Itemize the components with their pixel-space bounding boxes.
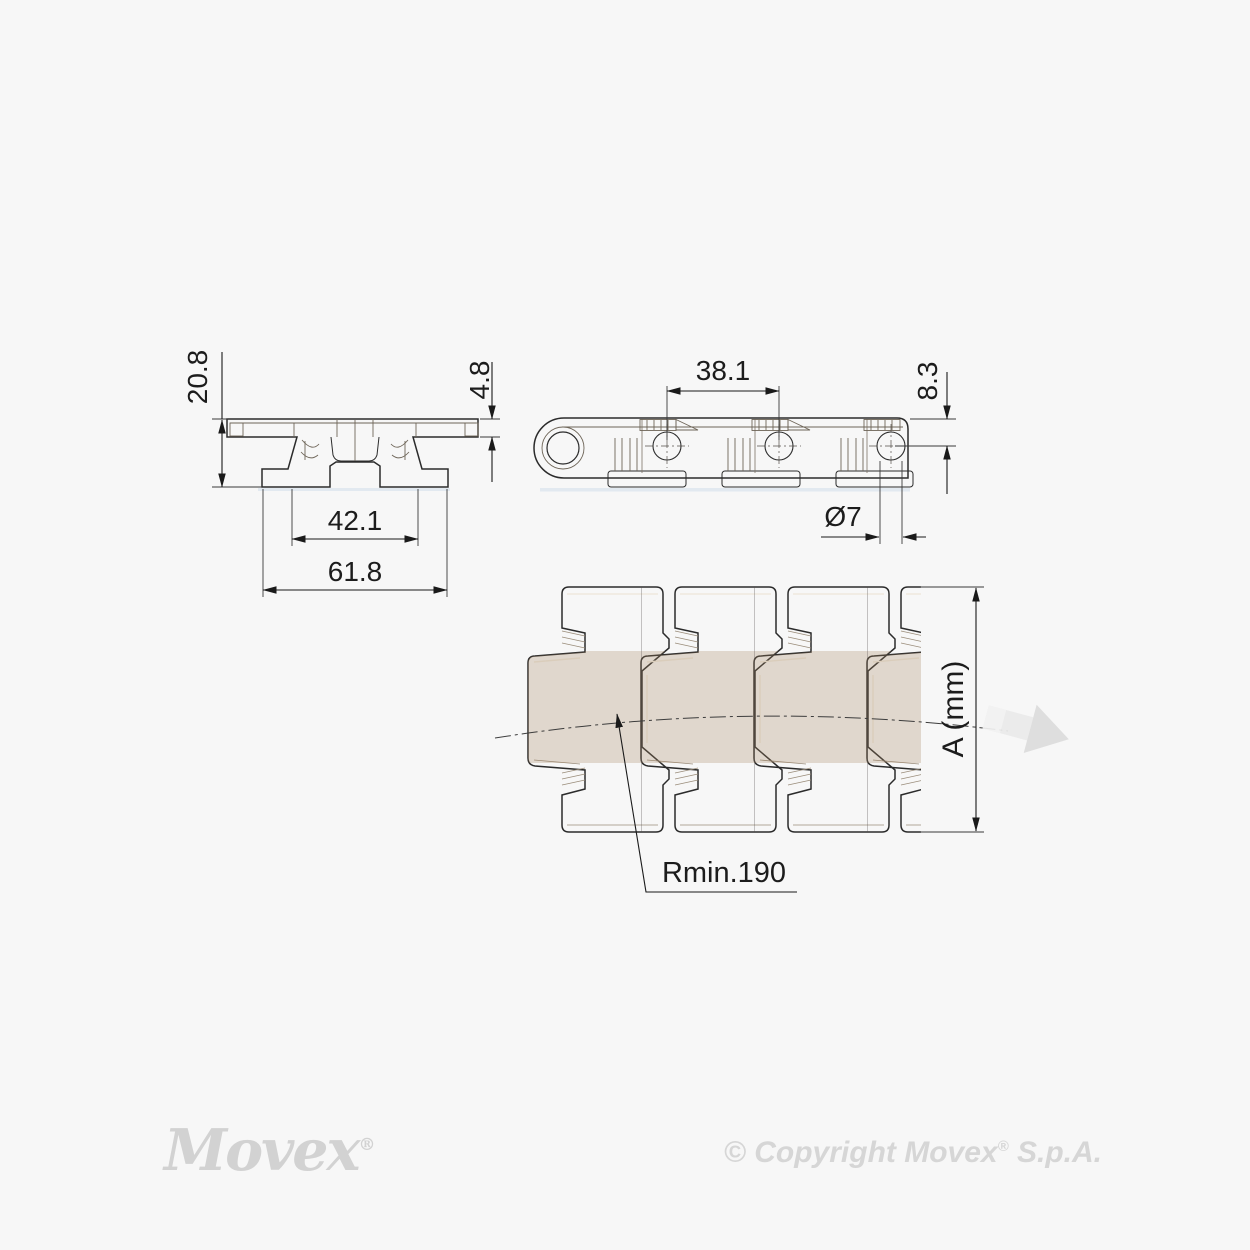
movex-logo: Movex®	[164, 1122, 375, 1179]
side-under-shadow	[540, 488, 910, 492]
technical-drawing-canvas: 20.8 4.8 42.1 61.8	[0, 0, 1250, 1250]
copyright-notice: © Copyright Movex® S.p.A.	[724, 1138, 1102, 1168]
dim-chain-width: A (mm)	[920, 587, 984, 832]
hinge-band-shading	[500, 651, 921, 763]
dim-pin-diameter: Ø7	[821, 461, 926, 544]
dim-label-hinge-width: 42.1	[328, 505, 383, 536]
direction-arrow-icon	[979, 693, 1075, 764]
dim-label-pin-center-offset: 8.3	[912, 362, 943, 401]
dim-label-min-radius: Rmin.190	[662, 857, 786, 889]
chain-plates	[500, 587, 1008, 832]
datasheet-page: { "drawing": { "front_view": { "overall_…	[0, 0, 1250, 1250]
dim-label-overall-width: 61.8	[328, 556, 383, 587]
registered-mark-icon: ®	[998, 1138, 1009, 1155]
dim-label-overall-height: 20.8	[182, 350, 213, 405]
plan-view: Rmin.190 A (mm)	[495, 587, 1075, 892]
side-view: 38.1 8.3 Ø7	[534, 355, 956, 544]
movex-logo-text: Movex	[164, 1117, 358, 1184]
dim-label-pin-diameter: Ø7	[824, 501, 861, 532]
front-under-shadow	[258, 488, 450, 491]
front-view: 20.8 4.8 42.1 61.8	[182, 350, 500, 597]
dim-hinge-width: 42.1	[292, 489, 418, 546]
dim-pin-center-offset: 8.3	[895, 362, 956, 494]
dim-label-chain-width: A (mm)	[937, 661, 970, 758]
end-pin-hole	[547, 432, 579, 464]
dim-label-pitch: 38.1	[696, 355, 751, 386]
registered-mark-icon: ®	[358, 1135, 375, 1155]
dim-label-plate-thickness: 4.8	[464, 361, 495, 400]
front-outline	[227, 419, 478, 487]
dim-plate-thickness: 4.8	[464, 361, 500, 482]
